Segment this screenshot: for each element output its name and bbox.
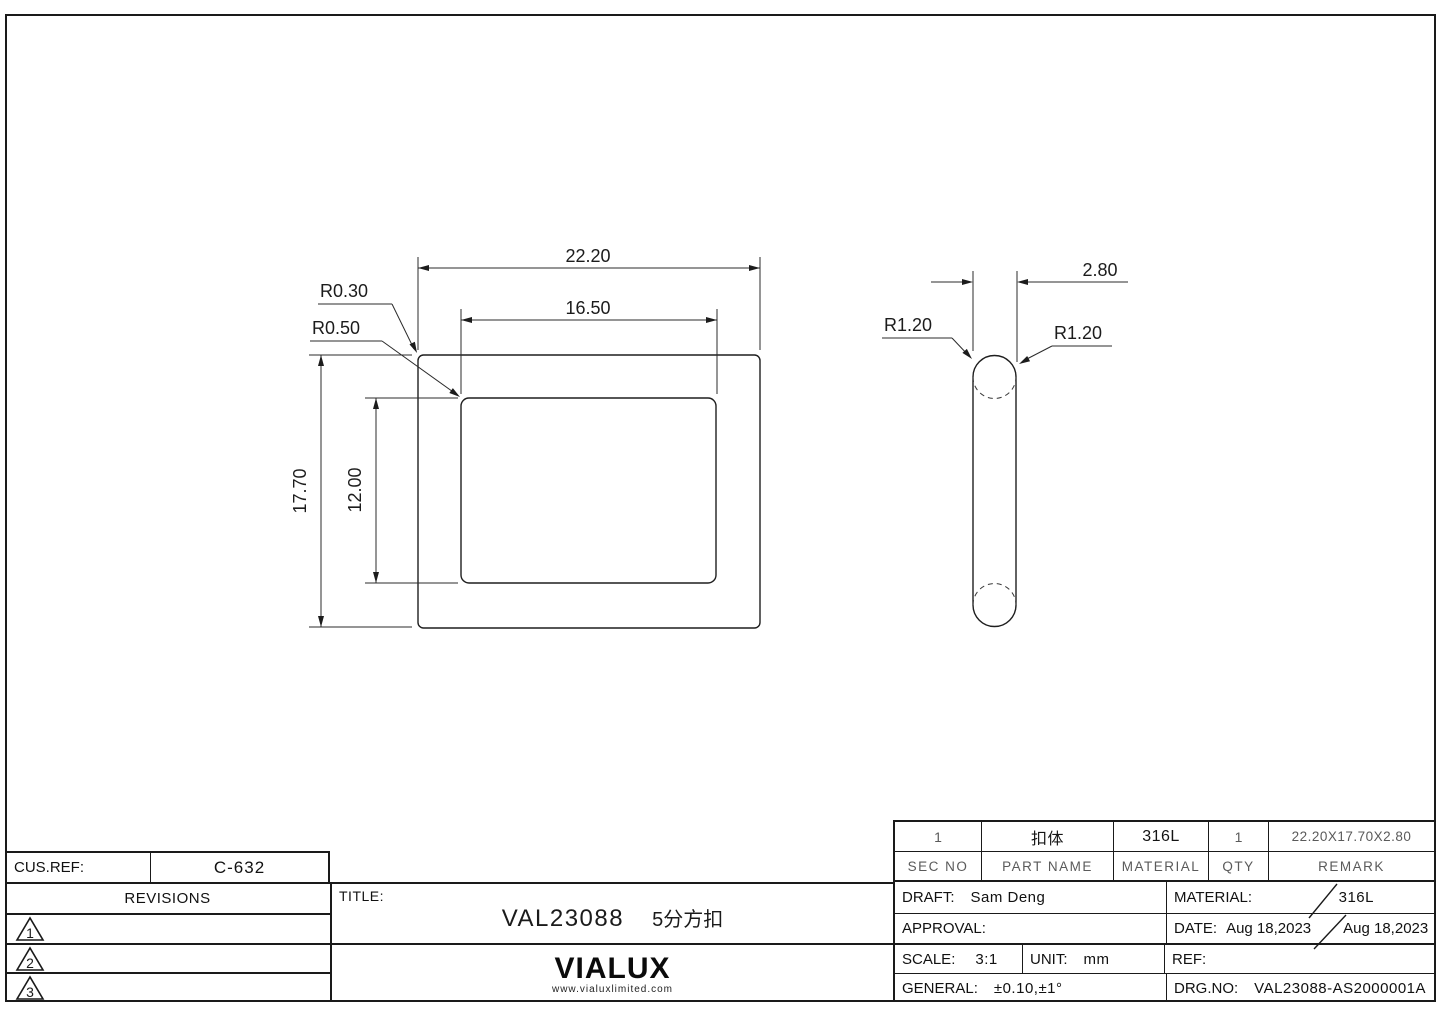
unit-label: UNIT: — [1030, 951, 1068, 968]
revision-number: 1 — [26, 925, 34, 941]
date-value-1: Aug 18,2023 — [1226, 920, 1311, 937]
ref-label: REF: — [1172, 951, 1206, 968]
date-value-2: Aug 18,2023 — [1343, 920, 1428, 937]
title-box: TITLE: VAL23088 5分方扣 VIALUX www.vialuxli… — [330, 882, 893, 1002]
revision-triangle-icon: 1 — [15, 916, 45, 942]
header-material: MATERIAL — [1113, 851, 1208, 880]
drg-no-value: VAL23088-AS2000001A — [1254, 980, 1426, 997]
approval-cell: APPROVAL: — [895, 914, 1166, 943]
revision-triangle-icon: 3 — [15, 975, 45, 1001]
part-number-title: VAL23088 — [502, 905, 624, 933]
logo-cell: VIALUX www.vialuxlimited.com — [332, 945, 893, 1002]
draft-cell: DRAFT: Sam Deng — [895, 882, 1166, 913]
title-block-fields: DRAFT: Sam Deng MATERIAL: 316L APPROVAL:… — [893, 882, 1436, 1002]
part-qty-value: 1 — [1208, 822, 1268, 851]
revision-number: 3 — [26, 984, 34, 1000]
revisions-header: REVISIONS — [5, 884, 330, 915]
scale-cell: SCALE: 3:1 — [895, 945, 1022, 973]
parts-list-table: 1 扣体 316L 1 22.20X17.70X2.80 SEC NO PART… — [893, 820, 1436, 882]
ref-cell: REF: — [1164, 945, 1436, 973]
date-cell: DATE: Aug 18,2023 Aug 18,2023 — [1166, 914, 1436, 943]
title-row: VAL23088 5分方扣 — [332, 903, 893, 933]
draft-value: Sam Deng — [971, 889, 1046, 906]
revision-row-3: 3 — [5, 974, 330, 1002]
drawing-sheet: 22.20 16.50 17.70 12.00 — [0, 0, 1445, 1021]
company-logo: VIALUX — [554, 952, 670, 986]
title-cell: TITLE: VAL23088 5分方扣 — [332, 884, 893, 945]
part-remark-value: 22.20X17.70X2.80 — [1268, 822, 1434, 851]
part-name-value: 扣体 — [981, 822, 1113, 851]
cus-ref-label: CUS.REF: — [5, 853, 151, 882]
scale-value: 3:1 — [975, 951, 997, 968]
approval-label: APPROVAL: — [902, 920, 986, 937]
company-website: www.vialuxlimited.com — [552, 984, 673, 995]
scale-label: SCALE: — [902, 951, 955, 968]
title-label: TITLE: — [339, 888, 384, 904]
part-name-chinese: 5分方扣 — [652, 903, 723, 932]
date-label: DATE: — [1174, 920, 1217, 937]
revision-triangle-icon: 2 — [15, 946, 45, 972]
general-label: GENERAL: — [902, 980, 978, 997]
cus-ref-value: C-632 — [151, 853, 328, 882]
revision-row-2: 2 — [5, 945, 330, 975]
revisions-box: REVISIONS 1 2 3 — [5, 882, 330, 1002]
drawing-number-cell: DRG.NO: VAL23088-AS2000001A — [1166, 974, 1436, 1002]
drg-no-label: DRG.NO: — [1174, 980, 1238, 997]
header-sec-no: SEC NO — [895, 851, 981, 880]
unit-value: mm — [1084, 951, 1110, 968]
cus-ref-box: CUS.REF: C-632 — [5, 851, 330, 882]
header-part-name: PART NAME — [981, 851, 1113, 880]
general-tolerance-cell: GENERAL: ±0.10,±1° — [895, 974, 1166, 1002]
material-label: MATERIAL: — [1174, 889, 1252, 906]
material-cell: MATERIAL: 316L — [1166, 882, 1436, 913]
part-sec-no-value: 1 — [895, 822, 981, 851]
general-value: ±0.10,±1° — [994, 980, 1063, 997]
material-value: 316L — [1339, 889, 1374, 906]
revision-row-1: 1 — [5, 915, 330, 945]
revision-number: 2 — [26, 955, 34, 971]
draft-label: DRAFT: — [902, 889, 955, 906]
part-material-value: 316L — [1113, 822, 1208, 851]
header-qty: QTY — [1208, 851, 1268, 880]
unit-cell: UNIT: mm — [1022, 945, 1164, 973]
header-remark: REMARK — [1268, 851, 1434, 880]
